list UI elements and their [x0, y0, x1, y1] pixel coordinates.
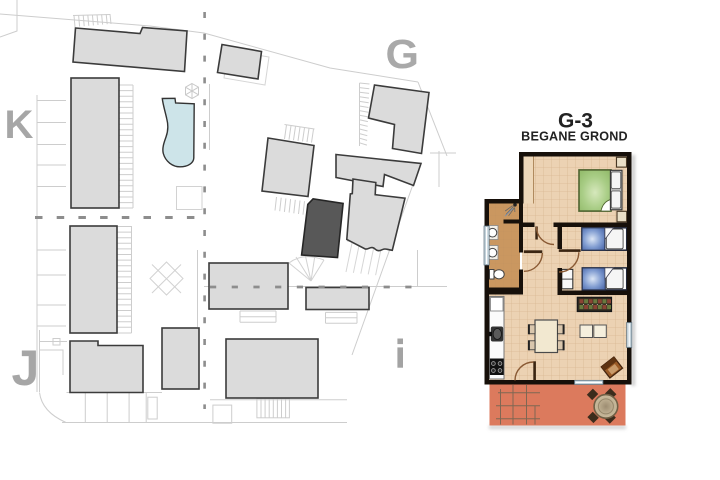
svg-text:K: K	[5, 103, 34, 147]
svg-text:J: J	[12, 340, 40, 396]
svg-text:G: G	[386, 31, 420, 77]
svg-text:BEGANE GROND: BEGANE GROND	[521, 130, 628, 144]
